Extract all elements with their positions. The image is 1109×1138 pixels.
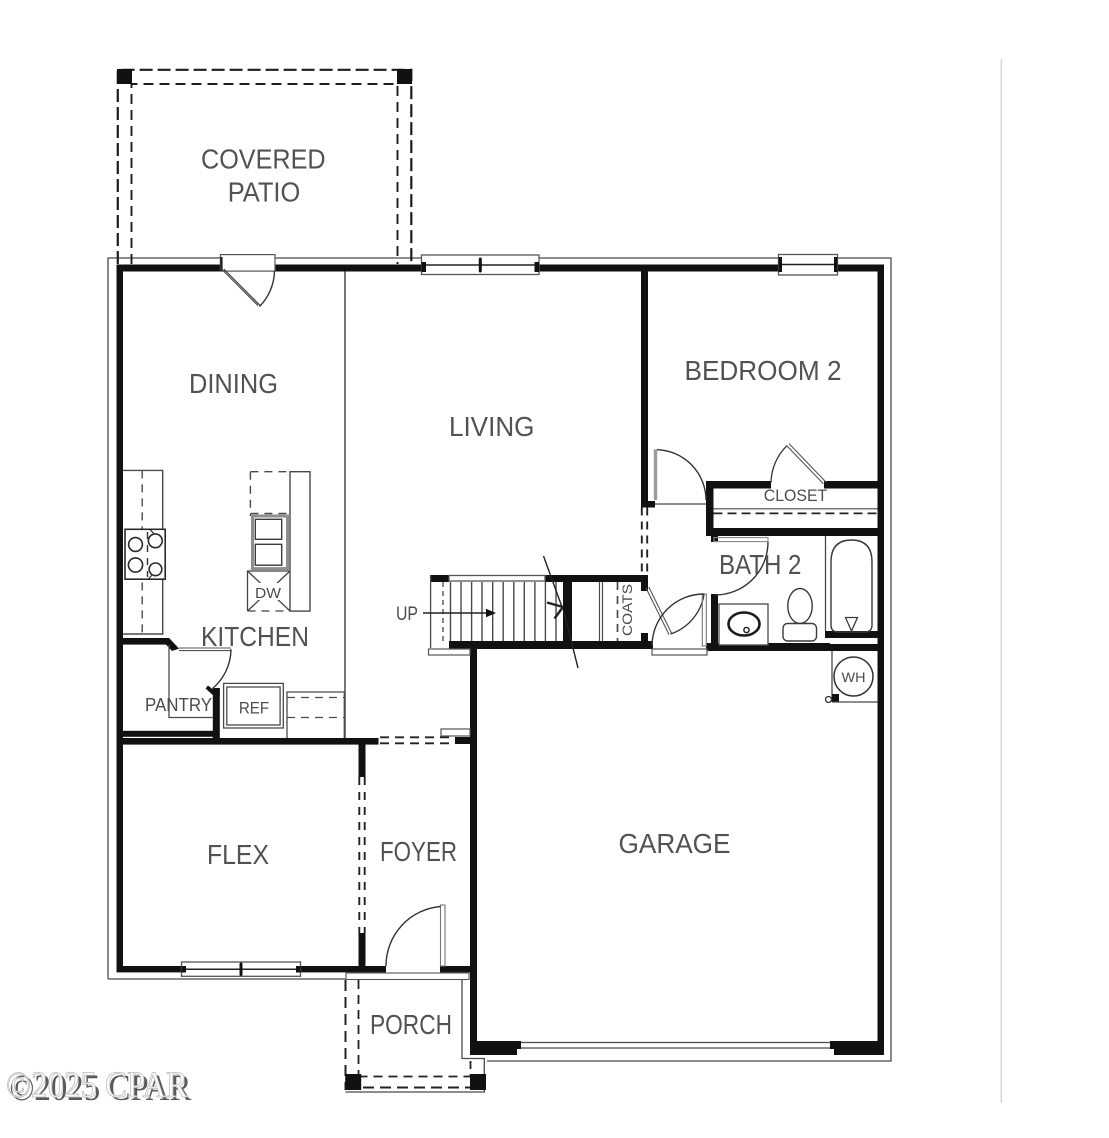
svg-text:LIVING: LIVING bbox=[449, 411, 535, 442]
svg-text:BEDROOM 2: BEDROOM 2 bbox=[685, 355, 842, 386]
svg-text:FLEX: FLEX bbox=[207, 839, 269, 870]
svg-text:FOYER: FOYER bbox=[380, 836, 457, 867]
svg-text:UP: UP bbox=[396, 604, 418, 625]
svg-text:GARAGE: GARAGE bbox=[619, 828, 731, 859]
svg-text:DINING: DINING bbox=[189, 368, 278, 399]
svg-text:REF: REF bbox=[239, 699, 269, 718]
svg-text:KITCHEN: KITCHEN bbox=[201, 621, 309, 652]
svg-text:COATS: COATS bbox=[620, 584, 635, 636]
svg-text:BATH 2: BATH 2 bbox=[719, 549, 802, 580]
svg-text:PANTRY: PANTRY bbox=[145, 695, 212, 715]
svg-text:DW: DW bbox=[255, 585, 282, 602]
svg-text:CLOSET: CLOSET bbox=[764, 486, 828, 505]
svg-text:©2025 CPAR: ©2025 CPAR bbox=[6, 1065, 188, 1106]
svg-text:WH: WH bbox=[842, 669, 866, 685]
svg-text:PORCH: PORCH bbox=[370, 1009, 452, 1040]
svg-text:PATIO: PATIO bbox=[228, 177, 301, 208]
svg-text:COVERED: COVERED bbox=[201, 143, 326, 174]
